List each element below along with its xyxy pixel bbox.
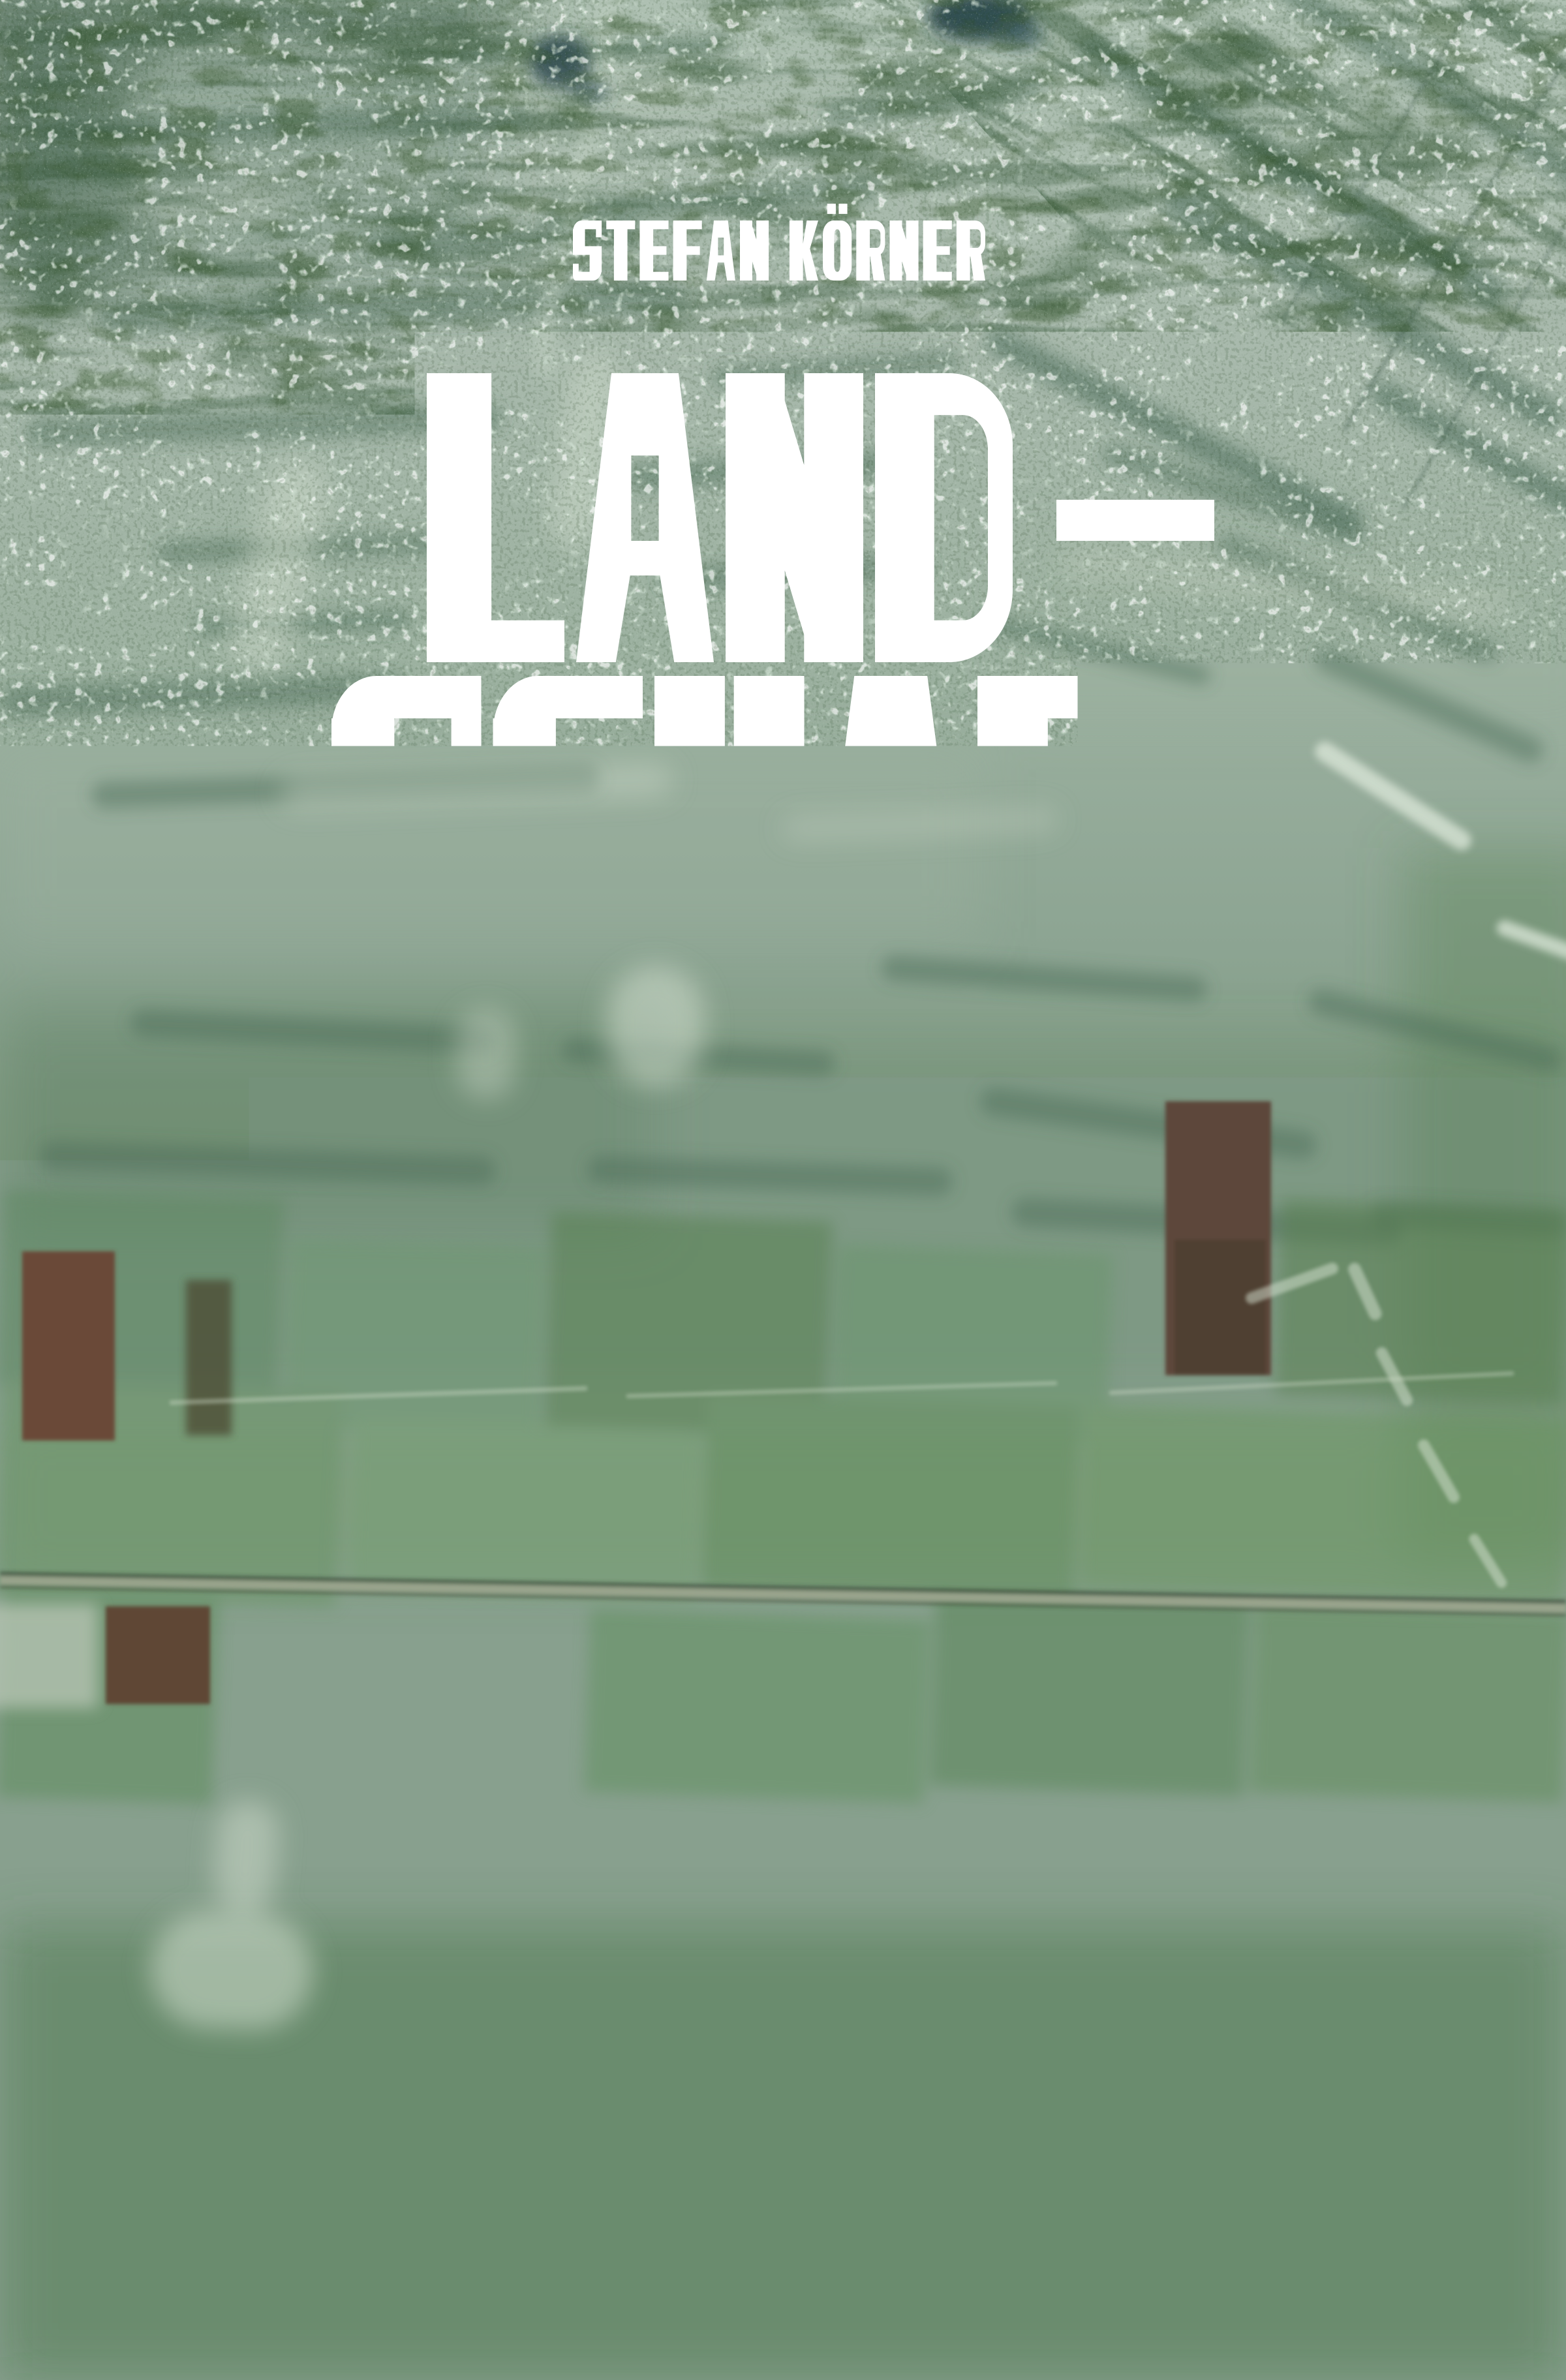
svg-text:transcript: transcript	[498, 2187, 757, 2261]
